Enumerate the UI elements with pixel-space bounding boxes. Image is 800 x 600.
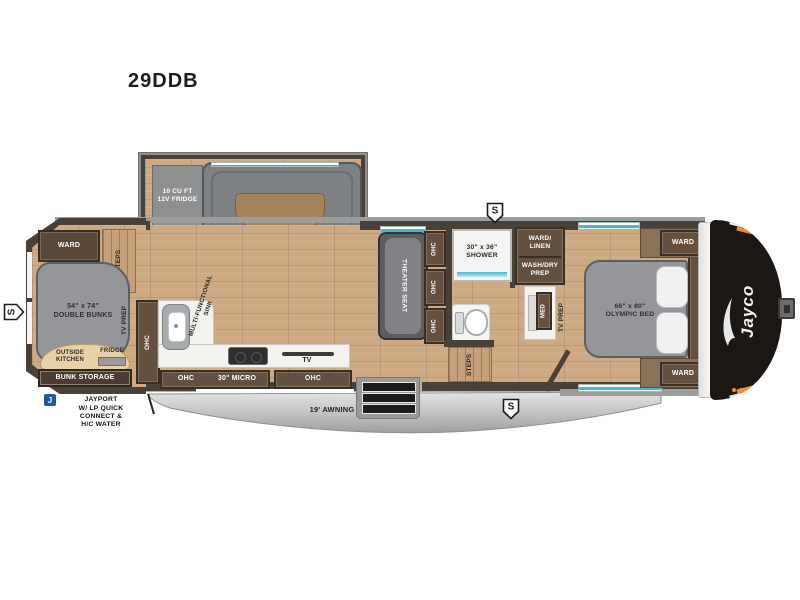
- bedroom-tv-prep-label: TV PREP: [556, 294, 568, 340]
- ward-linen-label: WARD/ LINEN: [517, 232, 563, 254]
- theater-seat-label: THEATER SEAT: [380, 234, 426, 338]
- bedroom-steps-label: STEPS: [449, 348, 491, 381]
- hitch-pin-inner: [784, 305, 790, 313]
- ohc-cabinet-3: OHC: [424, 308, 446, 344]
- ohc-cabinet-1: OHC: [424, 231, 446, 267]
- speaker-icon-left: S: [3, 303, 25, 321]
- bunk-tv-prep-label: TV PREP: [119, 296, 131, 344]
- ohc-cabinet-2: OHC: [424, 269, 446, 306]
- hitch-pin: [778, 298, 795, 319]
- outside-fridge-icon: [98, 357, 126, 366]
- bunk-window-1: [27, 252, 32, 298]
- bunk-storage: BUNK STORAGE: [38, 369, 132, 387]
- burner-1: [235, 352, 246, 363]
- entry-steps: [356, 377, 420, 419]
- pillow-top: [656, 266, 688, 308]
- shower: 30" x 36" SHOWER: [452, 229, 512, 282]
- kitchen-ohc-tall: OHC: [136, 300, 160, 384]
- theater-seat: THEATER SEAT: [378, 232, 428, 340]
- sink-drain: [174, 324, 178, 328]
- speaker-icon-top: S: [486, 202, 504, 224]
- cabinet-divider: [519, 256, 561, 258]
- med-cabinet: MED: [536, 292, 552, 330]
- jayco-logo: Jayco: [736, 256, 760, 366]
- tv-icon: [282, 352, 334, 356]
- bath-wall-bottom: [444, 340, 494, 347]
- cap-marker-light-3: [732, 388, 736, 392]
- toilet-icon: [464, 309, 488, 336]
- svg-text:S: S: [7, 308, 18, 315]
- page-title: 29DDB: [128, 70, 199, 93]
- tv-label: TV: [296, 357, 318, 366]
- ohc-label-3: OHC: [426, 310, 444, 342]
- shower-label: 30" x 36" SHOWER: [454, 241, 510, 263]
- window-bedroom-top: [578, 222, 640, 230]
- front-cap: Jayco: [710, 220, 782, 400]
- jayport-icon: J: [44, 394, 56, 406]
- ohc-label-2: OHC: [426, 271, 444, 304]
- wash-dry-label: WASH/DRY PREP: [517, 259, 563, 281]
- bedroom-steps: STEPS: [448, 347, 492, 382]
- cap-marker-light-4: [739, 388, 743, 392]
- entry-step-2: [362, 393, 416, 403]
- awning-rail-left: [196, 389, 354, 393]
- ward-linen-cabinet: WARD/ LINEN WASH/DRY PREP: [515, 227, 565, 285]
- cap-marker-light-1: [764, 224, 768, 228]
- entry-step-1: [362, 382, 416, 392]
- bunk-storage-label: BUNK STORAGE: [40, 371, 130, 385]
- dinette-window: [211, 162, 339, 167]
- toilet-tank: [455, 312, 464, 334]
- entry-step-3: [362, 404, 416, 414]
- med-label: MED: [538, 294, 550, 328]
- outside-fridge-label: FRIDGE: [94, 346, 130, 357]
- micro-label: 30" MICRO: [206, 373, 268, 385]
- bunk-ward-label: WARD: [40, 232, 98, 260]
- shower-threshold: [457, 272, 507, 277]
- awning-label: 19' AWNING: [300, 405, 364, 415]
- floorplan: 29DDB 19' AWNING 10 CU FT 12V FRIDGE: [0, 0, 800, 600]
- kitchen-ohc-tall-label: OHC: [138, 302, 158, 382]
- svg-text:S: S: [508, 402, 515, 413]
- jayport-label: JAYPORT W/ LP QUICK CONNECT & H/C WATER: [58, 393, 144, 433]
- bunk-window-2: [27, 302, 32, 344]
- eagle-graphic: [718, 296, 738, 348]
- bunk-ward-cabinet: WARD: [38, 230, 100, 262]
- tv-ohc-label: OHC: [276, 372, 350, 387]
- kitchen-ohc-label: OHC: [164, 373, 208, 385]
- tv-ohc-band: OHC: [274, 370, 352, 389]
- svg-text:S: S: [492, 206, 499, 217]
- cooktop-icon: [228, 347, 268, 365]
- cap-marker-light-2: [771, 224, 775, 228]
- burner-2: [251, 352, 262, 363]
- pillow-bottom: [656, 312, 688, 354]
- ohc-label-1: OHC: [426, 233, 444, 265]
- outside-kitchen-label: OUTSIDE KITCHEN: [44, 348, 96, 366]
- speaker-icon-awning: S: [502, 398, 520, 420]
